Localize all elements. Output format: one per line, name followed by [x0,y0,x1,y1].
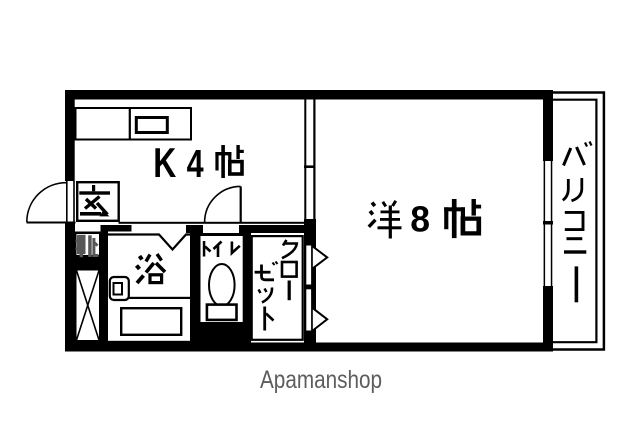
svg-text:Apamanshop: Apamanshop [260,367,382,394]
svg-text:8: 8 [410,198,430,239]
svg-text:4: 4 [187,143,204,186]
svg-text:K: K [153,139,176,186]
